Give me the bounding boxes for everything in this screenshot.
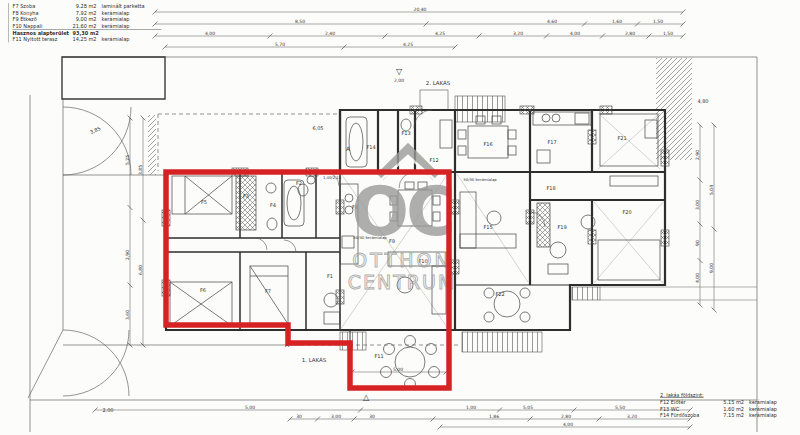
room-label-f6: F6 [200,287,206,293]
dimension-value: 3,00 [331,414,341,419]
annotation: 1,40/2,10 [323,175,342,180]
dimension-value: 3,00 [695,200,700,210]
dimension-value: 2,80 [625,31,635,36]
annotation: 4,80 [697,98,708,104]
terrace-table-f11 [381,336,440,390]
dimension-value: 20,40 [414,7,427,12]
dimension-value: 4,25 [403,42,413,47]
annotation: 3,85 [89,125,102,135]
cabinet-f12 [440,120,452,148]
annotation: △ [363,393,370,402]
legend-code: F10 Nappali [13,23,73,30]
dimension-value: 30 [296,414,302,419]
gate-swing-arc [63,107,131,175]
dimension-value: 6,80 [138,265,143,275]
room-label-f14: F14 [366,144,375,150]
bed-f5 [172,176,232,214]
dimension-value: 4,25 [435,31,445,36]
dimension-value: 1,50 [653,19,663,24]
legend-area: 21,60 m2 [73,23,102,30]
right-yard-lines [600,287,757,300]
room-label-f21: F21 [617,135,626,141]
terrace-steps-bottom [462,332,542,352]
room-label-f17: F17 [547,139,556,145]
dimension-value: 1,60 [612,19,622,24]
legend-bottom-right: 2. lakás földszint: F12 Előtér5,15 m2ker… [660,392,800,419]
watermark-otthon: OTTHON [352,249,451,271]
bath-f14 [346,117,367,167]
annotation: 30/30 kerámialap [463,177,497,182]
bed-f21 [600,114,658,166]
terrace-table-f22 [484,288,530,322]
wall [166,238,340,252]
room-label-f1: F1 [327,273,333,279]
legend-code: F14 Fürdőszoba [660,412,720,419]
dimension-value: 1,50 [663,31,673,36]
fence-hatch-strip [148,115,156,175]
room-label-f19: F19 [557,224,566,230]
dimension-value: 1,86 [489,414,499,419]
legend-row: F14 Fürdőszoba7,15 m2kerámialap [660,412,800,419]
dimension-value: 1,00 [466,405,476,410]
gate-swing-arc [63,330,129,396]
dimension-value: 4,00 [563,422,573,427]
dimension-value: 4,60 [547,19,557,24]
kitchen-f17 [533,112,591,163]
cabinet-f18 [610,176,658,186]
gate-swing-arc [63,330,129,396]
legend-row: F11 Nyitott terasz14,25 m2kerámialap [13,36,162,43]
legend-area: 7,15 m2 [720,412,749,419]
dimension-value: 5,00 [245,405,255,410]
room-label-f15: F15 [483,224,492,230]
dimension-value: 5,00 [393,367,403,372]
roof-overhang-dashed [158,114,338,171]
legend-br-title: 2. lakás földszint: [660,392,800,398]
room-label-f12: F12 [429,157,438,163]
bed-f7 [250,266,288,324]
room-label-f11: F11 [374,353,383,359]
room-label-f16: F16 [483,141,492,147]
legend-area: 14,25 m2 [73,36,102,43]
floor-plan: F1F2F3F4F5F6F7F8F9F10F11F12F13F14F15F16F… [0,0,800,435]
neighbor-building [62,57,165,99]
dimension-value: 2,90 [695,150,700,160]
dimension-value: 4,00 [570,31,580,36]
room-label-f5: F5 [201,199,207,205]
dining-f16 [458,116,516,158]
dimension-value: 5,04 [709,185,714,195]
furniture-f19 [537,203,568,274]
annotation: 1. LAKÁS [302,356,327,363]
legend-finish: kerámialap [102,23,162,30]
dimension-value: 9,00 [709,263,714,273]
room-label-f18: F18 [546,185,555,191]
dimension-value: 4,00 [695,273,700,283]
dimension-value: 5,70 [275,42,285,47]
dimension-value: 5,50 [615,405,625,410]
annotation: 2,00 [394,78,404,83]
dimension-value: 3,85 [138,165,143,175]
gate-swing-arc [63,107,131,175]
dimension-value: 3,20 [627,414,637,419]
room-label-f3: F3 [243,193,249,199]
annotation: 6,05 [312,125,323,131]
dimension-value: 2,80 [561,414,571,419]
sofa-f15 [460,192,516,248]
wardrobe-f3 [236,176,256,230]
watermark-centrum: CENTRUM [348,271,457,293]
watermark-oc: OC [351,172,453,251]
annotation: A [346,145,351,152]
annotation: ▽ [396,67,403,76]
legend-row: F10 Nappali21,60 m2kerámialap [13,23,162,30]
appliance-f1 [324,293,340,324]
wc-f2 [298,176,315,196]
dimension-value: 4,00 [205,31,215,36]
scanned-floor-plan-page: F1F2F3F4F5F6F7F8F9F10F11F12F13F14F15F16F… [0,0,800,435]
room-label-f2: F2 [296,180,302,186]
dimension-value: 30 [369,414,375,419]
legend-code: F11 Nyitott terasz [13,36,73,43]
room-label-f7: F7 [265,288,271,294]
entrance-porch [420,90,448,110]
legend-finish: kerámialap [102,36,162,43]
dimension-value: 5,25 [125,155,130,165]
dimension-value: 2,90 [125,250,130,260]
room-label-f4: F4 [270,202,276,208]
room-label-f22: F22 [495,291,504,297]
terrace-steps-right [572,287,600,300]
dimension-value: 3,20 [513,31,523,36]
dimension-value: 5,05 [523,405,533,410]
corner-diagonal [28,330,63,398]
room-label-f20: F20 [622,209,631,215]
legend-top-left: F7 Szoba9,28 m2laminált parkettaF8 Konyh… [8,3,162,43]
dimension-value: 90 [695,240,700,246]
legend-finish: kerámialap [749,412,800,419]
dimension-value: 2,40 [325,31,335,36]
dimension-value: 3,60 [125,310,130,320]
room-label-f13: F13 [401,130,410,136]
dimension-value: 8,50 [295,19,305,24]
annotation: 2. LAKÁS [426,79,451,86]
terrace-f22-outline [455,285,570,330]
